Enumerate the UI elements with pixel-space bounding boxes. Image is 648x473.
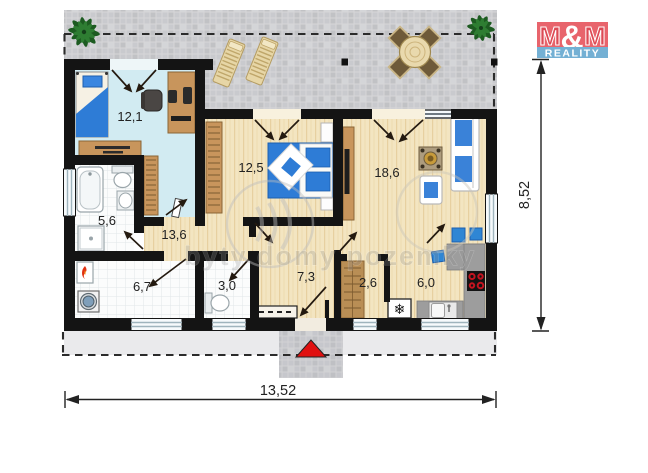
svg-text:8,52: 8,52 [517, 181, 533, 209]
svg-text:M: M [584, 21, 606, 51]
svg-text:REALITY: REALITY [545, 48, 600, 60]
svg-text:18,6: 18,6 [374, 165, 399, 180]
svg-text:2,6: 2,6 [359, 275, 377, 290]
svg-text:13,52: 13,52 [260, 383, 296, 399]
svg-text:5,6: 5,6 [98, 213, 116, 228]
svg-text:6,7: 6,7 [133, 279, 151, 294]
svg-text:❄: ❄ [394, 301, 406, 317]
svg-text:12,5: 12,5 [238, 160, 263, 175]
svg-text:byty domy pozemky: byty domy pozemky [184, 241, 476, 271]
svg-text:M: M [539, 21, 561, 51]
svg-text:3,0: 3,0 [218, 278, 236, 293]
svg-text:12,1: 12,1 [117, 109, 142, 124]
svg-text:13,6: 13,6 [161, 227, 186, 242]
svg-text:6,0: 6,0 [417, 275, 435, 290]
svg-text:7,3: 7,3 [297, 269, 315, 284]
